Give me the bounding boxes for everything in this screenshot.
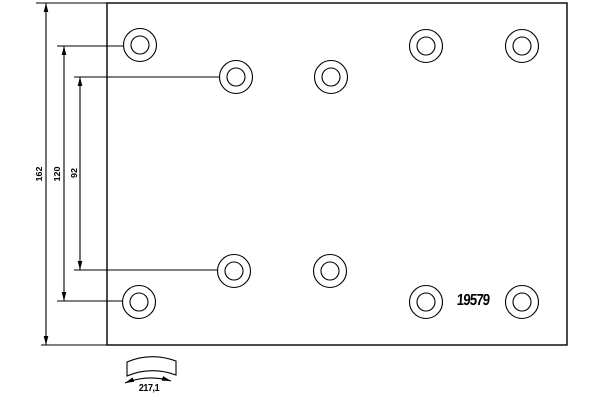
dimension-label-arc-width: 217,1 [126, 384, 173, 394]
rivet-hole-inner [227, 68, 245, 86]
rivet-hole-outer [218, 255, 251, 288]
dimension-arrow-outer-hole-spacing [62, 46, 67, 55]
rivet-hole-inner [322, 68, 340, 86]
part-number: 19579 [444, 293, 503, 309]
dimension-label-inner-hole-spacing: 92 [70, 160, 79, 186]
rivet-hole-outer [314, 255, 347, 288]
rivet-hole-outer [220, 61, 253, 94]
rivet-hole-inner [417, 37, 435, 55]
rivet-hole-outer [410, 30, 443, 63]
curvature-dimension-arrow [125, 377, 134, 383]
dimension-arrow-inner-hole-spacing [78, 261, 83, 270]
dimension-label-outer-hole-spacing: 120 [53, 161, 62, 187]
rivet-hole-outer [315, 61, 348, 94]
dimension-label-total-height: 162 [35, 161, 44, 187]
technical-drawing [0, 0, 600, 400]
rivet-hole-inner [513, 37, 531, 55]
rivet-hole-inner [513, 293, 531, 311]
dimension-arrow-total-height [44, 336, 49, 345]
dimension-arrow-outer-hole-spacing [62, 292, 67, 301]
rivet-hole-outer [506, 286, 539, 319]
rivet-hole-outer [123, 286, 156, 319]
dimension-arrow-total-height [44, 3, 49, 12]
rivet-hole-outer [506, 30, 539, 63]
rivet-hole-inner [225, 262, 243, 280]
rivet-hole-outer [410, 286, 443, 319]
rivet-hole-inner [417, 293, 435, 311]
dimension-arrow-inner-hole-spacing [78, 77, 83, 86]
rivet-hole-inner [130, 293, 148, 311]
curvature-dimension-arrow [162, 376, 171, 381]
rivet-hole-inner [321, 262, 339, 280]
drawing-canvas: 162 120 92 19579 217,1 [0, 0, 600, 400]
rivet-hole-outer [124, 29, 157, 62]
rivet-hole-inner [131, 36, 149, 54]
curvature-band-symbol [127, 357, 176, 376]
